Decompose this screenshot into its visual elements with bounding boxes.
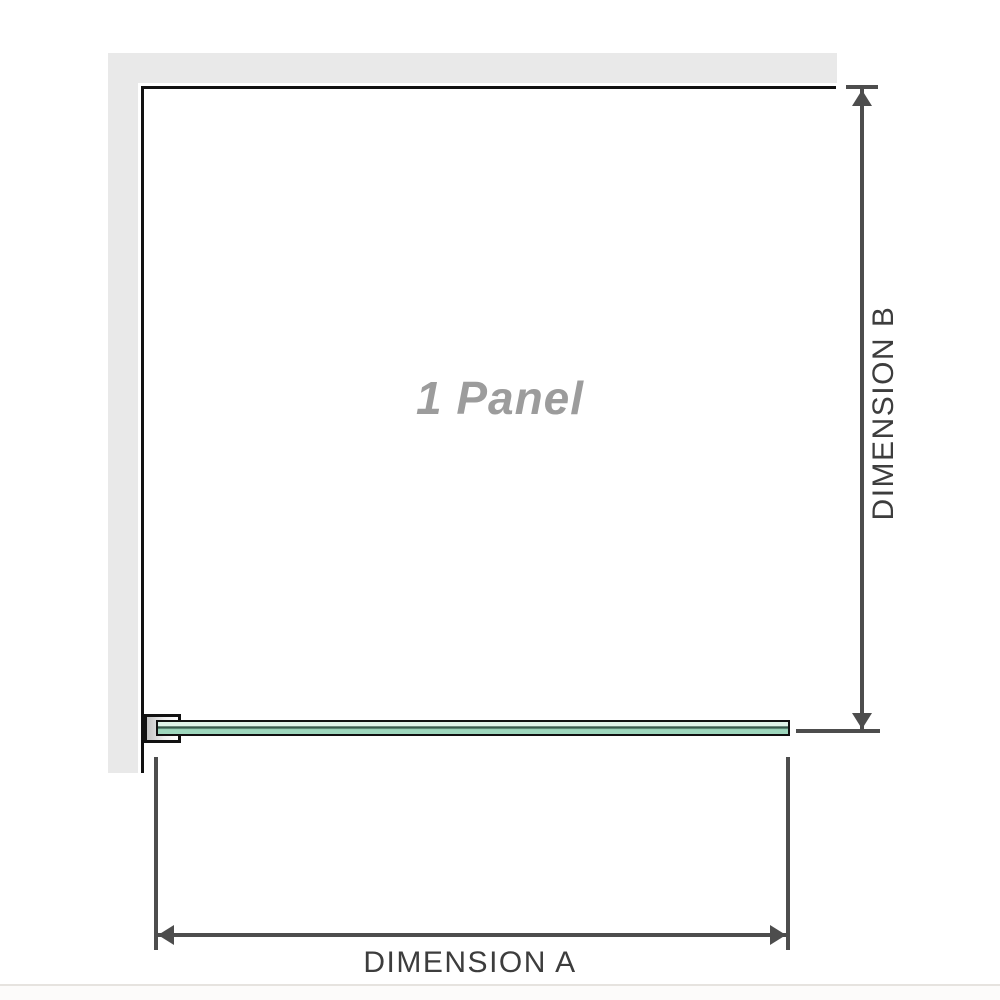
wall-inner-edge-top-line	[142, 86, 836, 89]
wall-top-segment	[108, 53, 837, 83]
dimension-b-label: DIMENSION B	[868, 263, 900, 563]
dimension-a-line	[158, 933, 786, 937]
dimension-a-label: DIMENSION A	[260, 946, 680, 980]
arrow-right-icon	[770, 925, 786, 945]
dimension-a-right-extension-line	[786, 757, 790, 950]
arrow-up-icon	[852, 90, 872, 106]
wall-left-segment	[108, 53, 138, 773]
glass-panel	[156, 720, 790, 736]
dimension-b-bottom-tick	[796, 729, 880, 733]
arrow-left-icon	[158, 925, 174, 945]
arrow-down-icon	[852, 713, 872, 729]
dimension-a-left-extension-line	[154, 757, 158, 950]
panel-dimension-diagram: 1 Panel DIMENSION B DIMENSION A	[0, 0, 1000, 1000]
wall-inner-edge-left-line	[141, 86, 144, 773]
below-divider-strip	[0, 986, 1000, 1000]
dimension-b-line	[860, 88, 864, 730]
panel-count-label: 1 Panel	[300, 372, 700, 424]
